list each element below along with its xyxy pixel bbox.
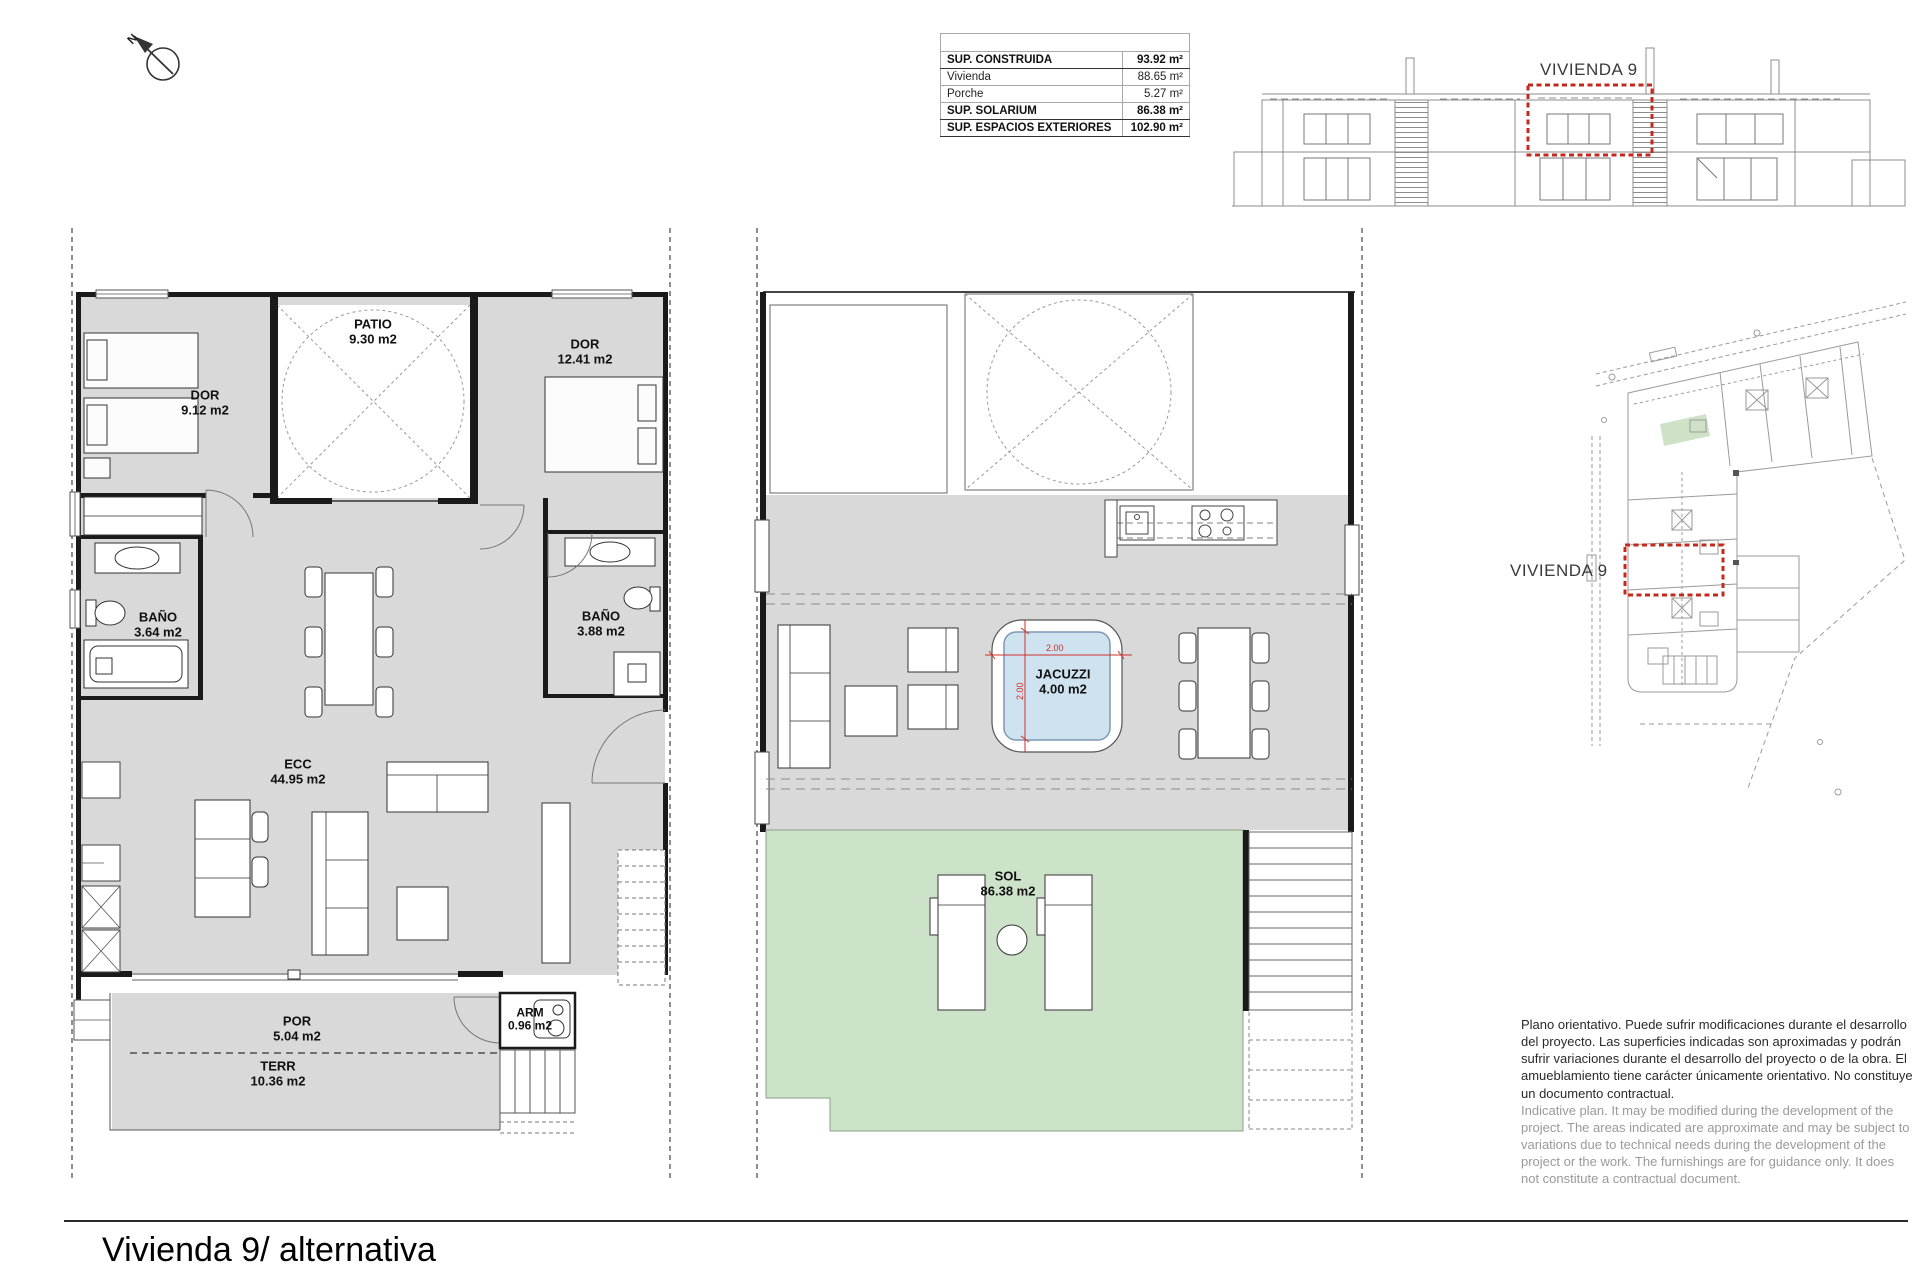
area-row-value: 86.38 m²	[1122, 103, 1189, 120]
areas-table-row: SUP. SOLARIUM86.38 m²	[941, 103, 1190, 120]
areas-table: SUP. CONSTRUIDA93.92 m²Vivienda88.65 m²P…	[940, 33, 1190, 137]
area-row-label: Vivienda	[941, 69, 1123, 86]
areas-table-header-row	[941, 34, 1190, 52]
elevation-unit-label: VIVIENDA 9	[1540, 60, 1638, 80]
areas-table-row: Vivienda88.65 m²	[941, 69, 1190, 86]
room-label-ecc: ECC 44.95 m2	[271, 757, 326, 786]
room-label-dor1: DOR 9.12 m2	[181, 388, 229, 417]
areas-table-row: Porche5.27 m²	[941, 86, 1190, 103]
room-label-dor2: DOR 12.41 m2	[558, 337, 613, 366]
room-label-jacuzzi: JACUZZI 4.00 m2	[1036, 667, 1091, 696]
sheet-title: Vivienda 9/ alternativa	[102, 1231, 436, 1270]
room-label-sol: SOL 86.38 m2	[981, 869, 1036, 898]
area-row-value: 93.92 m²	[1122, 52, 1189, 69]
area-row-value: 88.65 m²	[1122, 69, 1189, 86]
area-row-label: SUP. SOLARIUM	[941, 103, 1123, 120]
area-row-value: 5.27 m²	[1122, 86, 1189, 103]
disclaimer-english: Indicative plan. It may be modified duri…	[1521, 1102, 1913, 1188]
solarium-stairs	[1243, 830, 1352, 1131]
solarium-plan	[755, 228, 1362, 1180]
jacuzzi-depth-dim: 2.00	[1015, 682, 1025, 700]
areas-table-row: SUP. CONSTRUIDA93.92 m²	[941, 52, 1190, 69]
area-row-label: Porche	[941, 86, 1123, 103]
room-label-terr: TERR 10.36 m2	[251, 1059, 306, 1088]
jacuzzi-width-dim: 2.00	[1046, 643, 1064, 653]
solarium-dining-set	[1179, 628, 1269, 759]
disclaimer-spanish: Plano orientativo. Puede sufrir modifica…	[1521, 1016, 1913, 1102]
plan-sheet: { "document": { "title": "Vivienda 9/ al…	[0, 0, 1920, 1280]
area-row-label: SUP. CONSTRUIDA	[941, 52, 1123, 69]
ground-floor-plan	[70, 228, 670, 1180]
dining-set	[305, 567, 393, 717]
areas-table-body: SUP. CONSTRUIDA93.92 m²Vivienda88.65 m²P…	[941, 34, 1190, 137]
area-row-label: SUP. ESPACIOS EXTERIORES	[941, 120, 1123, 137]
footer-rule	[64, 1220, 1908, 1222]
disclaimer: Plano orientativo. Puede sufrir modifica…	[1521, 1016, 1913, 1188]
north-arrow-icon	[134, 36, 179, 80]
room-label-arm: ARM 0.96 m2	[508, 1007, 552, 1034]
room-label-patio: PATIO 9.30 m2	[349, 317, 397, 346]
site-plan	[1587, 302, 1906, 795]
area-row-value: 102.90 m²	[1122, 120, 1189, 137]
site-unit-label: VIVIENDA 9	[1510, 561, 1608, 581]
bed	[545, 377, 663, 472]
areas-table-row: SUP. ESPACIOS EXTERIORES102.90 m²	[941, 120, 1190, 137]
room-label-bano2: BAÑO 3.88 m2	[577, 609, 625, 638]
room-label-bano1: BAÑO 3.64 m2	[134, 610, 182, 639]
room-label-por: POR 5.04 m2	[273, 1014, 321, 1043]
solarium-patio-void	[965, 294, 1193, 490]
kitchen-units	[82, 762, 120, 972]
